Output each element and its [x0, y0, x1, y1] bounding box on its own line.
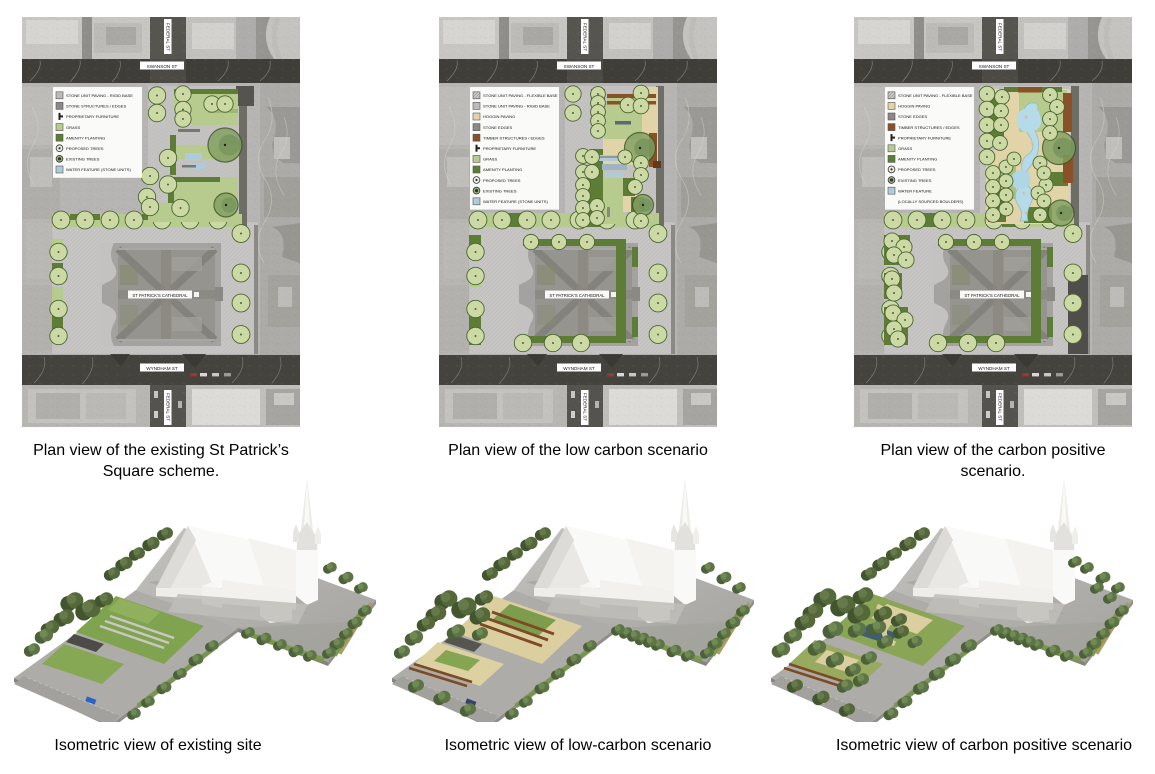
svg-text:ST PATRICK'S CATHEDRAL: ST PATRICK'S CATHEDRAL [964, 293, 1020, 298]
svg-text:STONE UNIT PAVING - FLEXIBLE B: STONE UNIT PAVING - FLEXIBLE BASE [898, 93, 973, 98]
svg-text:PROPRIETARY FURNITURE: PROPRIETARY FURNITURE [66, 114, 119, 119]
svg-text:EXISTING TREES: EXISTING TREES [898, 178, 932, 183]
svg-text:AMENITY PLANTING: AMENITY PLANTING [66, 135, 105, 140]
svg-text:STONE UNIT PAVING - FLEXIBLE B: STONE UNIT PAVING - FLEXIBLE BASE [483, 93, 558, 98]
svg-text:STONE UNIT PAVING - RIGID BASE: STONE UNIT PAVING - RIGID BASE [66, 93, 133, 98]
svg-text:AMENITY PLANTING: AMENITY PLANTING [898, 157, 937, 162]
svg-text:EXISTING TREES: EXISTING TREES [66, 157, 100, 162]
svg-text:TIMBER STRUCTURES / EDGES: TIMBER STRUCTURES / EDGES [898, 125, 960, 130]
svg-text:PROPRIETARY FURNITURE: PROPRIETARY FURNITURE [898, 135, 951, 140]
svg-text:PROPOSED TREES: PROPOSED TREES [66, 146, 104, 151]
svg-text:TIMBER STRUCTURES / EDGES: TIMBER STRUCTURES / EDGES [483, 135, 545, 140]
svg-text:PROPOSED TREES: PROPOSED TREES [483, 178, 521, 183]
svg-text:PROPRIETARY FURNITURE: PROPRIETARY FURNITURE [483, 146, 536, 151]
svg-text:STONE UNIT PAVING - RIGID BASE: STONE UNIT PAVING - RIGID BASE [483, 104, 550, 109]
svg-text:GRASS: GRASS [483, 157, 497, 162]
svg-text:STONE STRUCTURES / EDGES: STONE STRUCTURES / EDGES [66, 104, 126, 109]
svg-text:AMENITY PLANTING: AMENITY PLANTING [483, 167, 522, 172]
svg-text:STONE EDGES: STONE EDGES [898, 114, 927, 119]
svg-text:WATER FEATURE: WATER FEATURE [898, 188, 932, 193]
svg-text:PROPOSED TREES: PROPOSED TREES [898, 167, 936, 172]
svg-text:ST PATRICK'S CATHEDRAL: ST PATRICK'S CATHEDRAL [132, 293, 188, 298]
svg-text:GRASS: GRASS [898, 146, 912, 151]
svg-text:WATER FEATURE (STONE UNITS): WATER FEATURE (STONE UNITS) [66, 167, 131, 172]
svg-text:STONE EDGES: STONE EDGES [483, 125, 512, 130]
svg-text:HOGGIN PAVING: HOGGIN PAVING [898, 104, 930, 109]
svg-text:WATER FEATURE (STONE UNITS): WATER FEATURE (STONE UNITS) [483, 199, 548, 204]
svg-text:(LOCALLY SOURCED BOULDERS): (LOCALLY SOURCED BOULDERS) [898, 199, 964, 204]
svg-text:ST PATRICK'S CATHEDRAL: ST PATRICK'S CATHEDRAL [549, 293, 605, 298]
svg-text:GRASS: GRASS [66, 125, 80, 130]
svg-text:HOGGIN PAVING: HOGGIN PAVING [483, 114, 515, 119]
svg-text:EXISTING TREES: EXISTING TREES [483, 188, 517, 193]
